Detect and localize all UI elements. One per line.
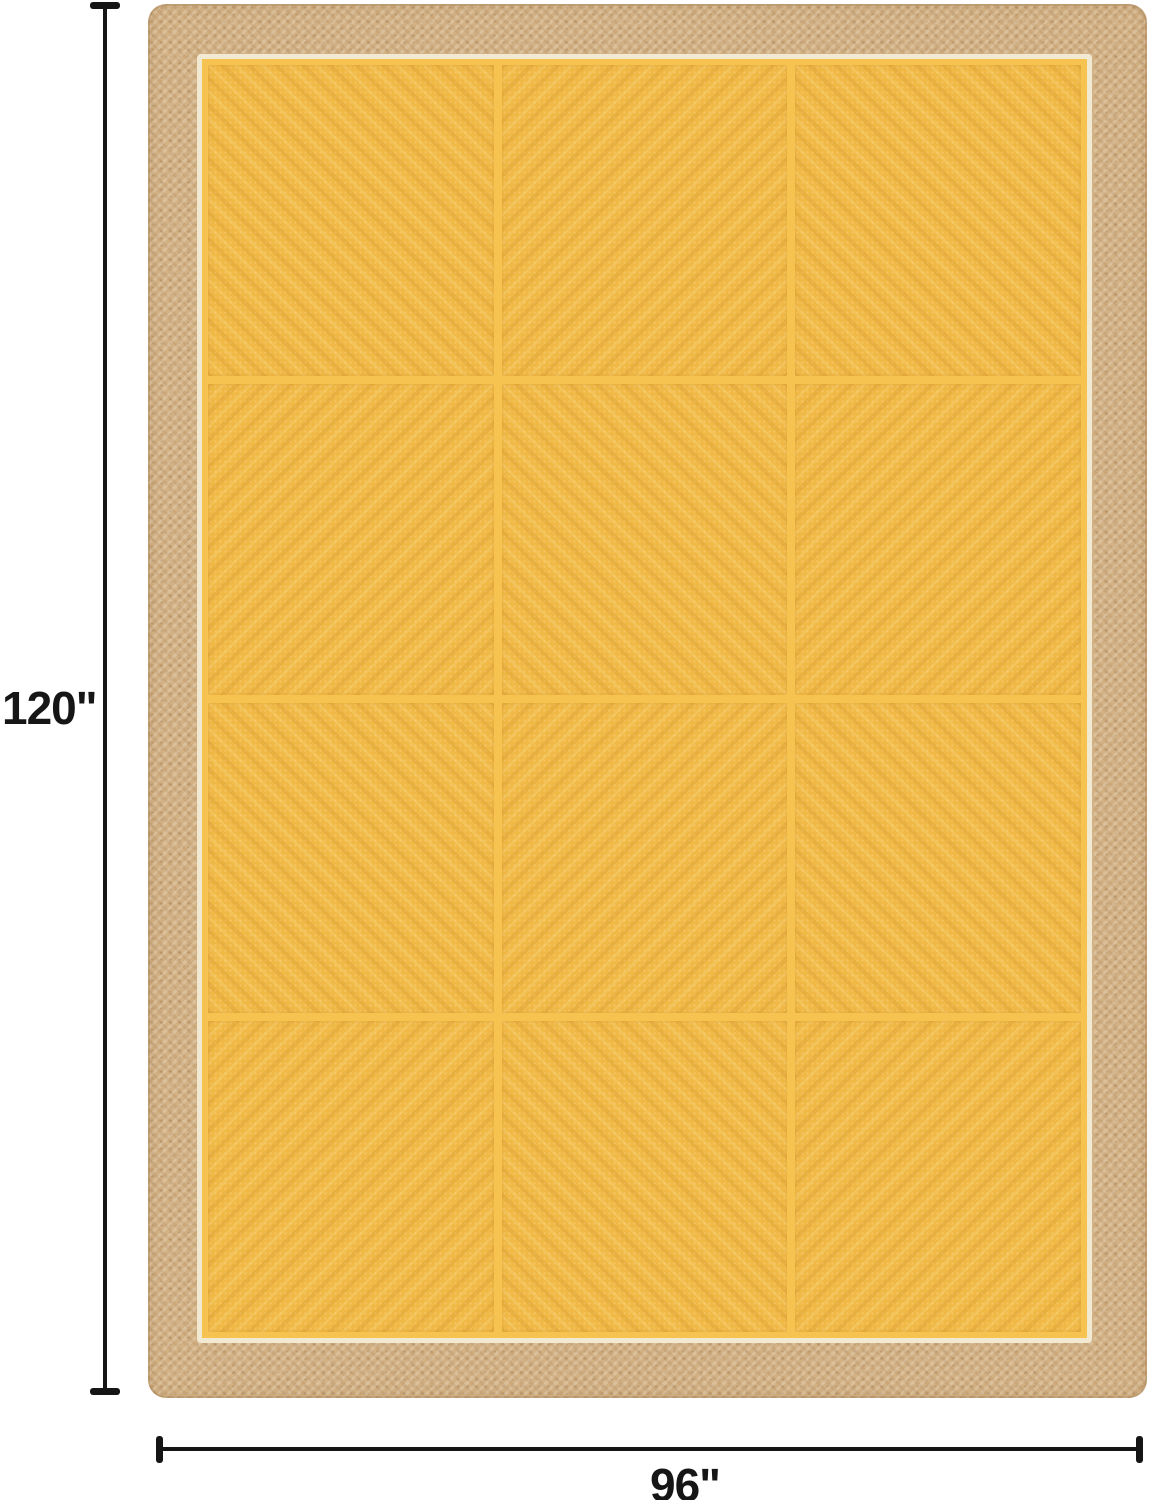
height-dimension-label: 120" [2, 681, 97, 735]
height-dimension-line [103, 6, 107, 1392]
rug-cell [502, 384, 788, 695]
rug-trim [197, 54, 1092, 1343]
rug-cell [502, 1021, 788, 1332]
rug-cell [795, 384, 1081, 695]
width-dimension-line [159, 1447, 1142, 1451]
rug-cell [502, 703, 788, 1014]
rug-field [202, 59, 1087, 1338]
rug-image [148, 4, 1147, 1398]
rug-cell [208, 1021, 494, 1332]
width-dimension-label: 96" [560, 1458, 810, 1500]
width-dimension-right-cap [1136, 1436, 1143, 1463]
rug-cell [795, 1021, 1081, 1332]
rug-cell [795, 65, 1081, 376]
rug-cell [208, 703, 494, 1014]
rug-cell [208, 384, 494, 695]
width-dimension-left-cap [156, 1436, 163, 1463]
rug-cell [795, 703, 1081, 1014]
product-dimension-image: 120" 96" [0, 0, 1151, 1500]
height-dimension-top-cap [90, 2, 120, 9]
rug-cell [502, 65, 788, 376]
height-dimension-bottom-cap [90, 1388, 120, 1395]
rug-cell [208, 65, 494, 376]
